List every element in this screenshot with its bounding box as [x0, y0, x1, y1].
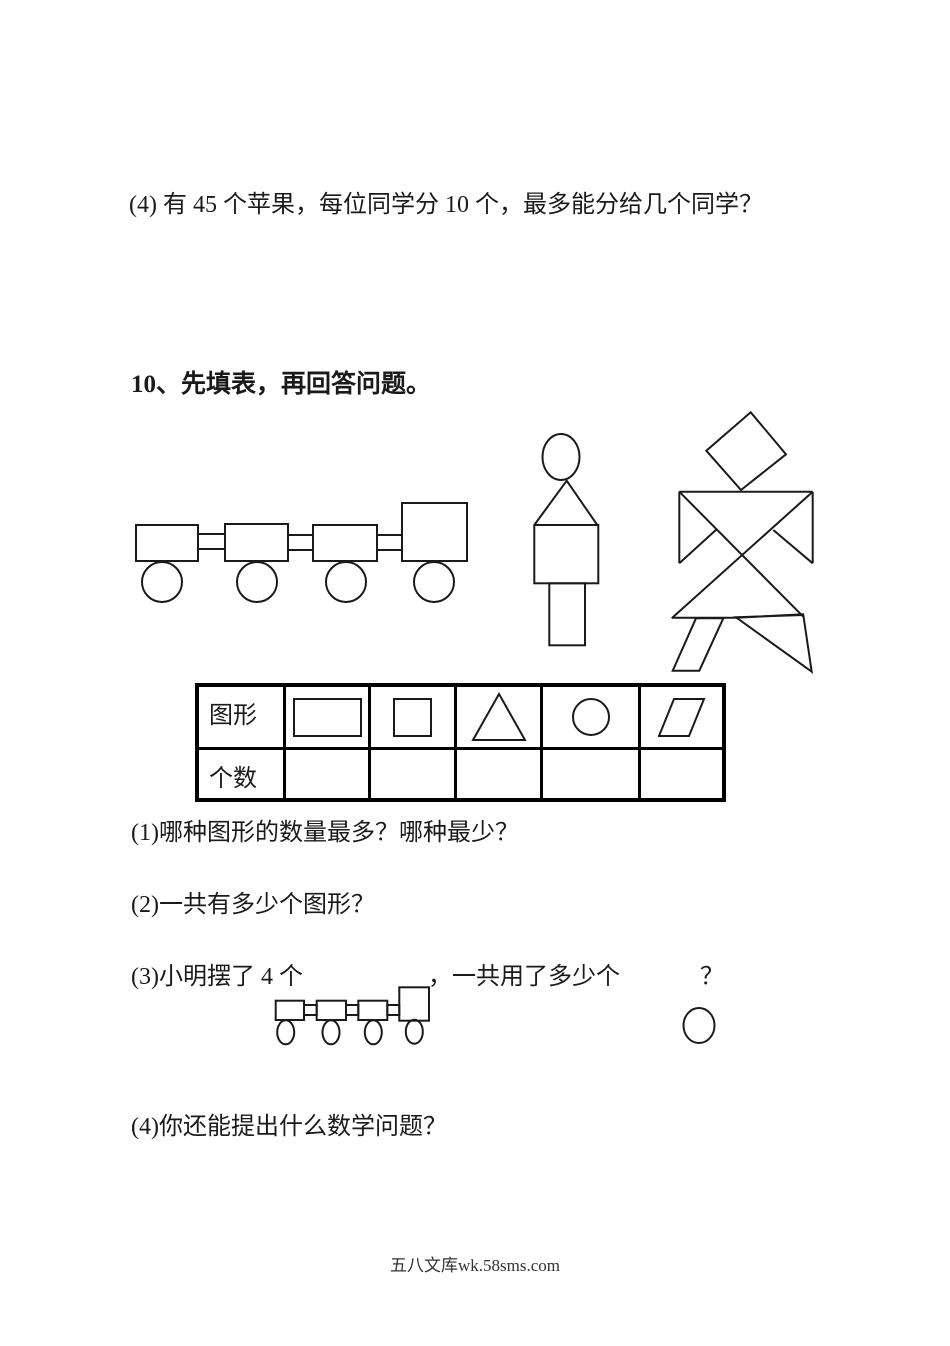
- circle-icon: [571, 697, 611, 737]
- question-1: (1)哪种图形的数量最多？哪种最少？: [131, 820, 519, 846]
- question-3-after: ，一共用了多少个: [428, 964, 620, 990]
- tangram-left-inner-line: [679, 529, 716, 563]
- person-figure: [528, 430, 603, 652]
- small-train-wagon-3: [358, 1001, 387, 1020]
- train-coupler-3: [377, 535, 402, 550]
- train-coupler-1: [198, 534, 225, 549]
- train-figure: [130, 498, 475, 608]
- train-engine-square: [402, 503, 467, 561]
- person-shoulders-triangle: [534, 481, 597, 525]
- rectangle-icon: [292, 697, 363, 738]
- person-body-square: [534, 525, 598, 583]
- count-cell-triangle[interactable]: [454, 747, 540, 798]
- train-wheel-2: [237, 562, 277, 602]
- train-wagon-1: [136, 525, 198, 561]
- table-cell-circle: [540, 687, 638, 747]
- shape-count-table: 图形 个数: [195, 683, 726, 802]
- table-header-shape: 图形: [199, 687, 283, 747]
- small-train-coupler-1: [304, 1005, 317, 1015]
- tangram-right-inner-line: [773, 530, 812, 563]
- small-train-wheel-3: [365, 1020, 382, 1044]
- triangle-icon: [471, 692, 527, 743]
- small-train-wheel-1: [277, 1020, 294, 1044]
- tangram-diagonal-b: [672, 492, 813, 619]
- count-cell-parallelogram[interactable]: [638, 747, 722, 798]
- train-wheel-3: [326, 562, 366, 602]
- train-wheel-1: [142, 562, 182, 602]
- count-cell-square[interactable]: [368, 747, 454, 798]
- tangram-diagonal-a: [679, 492, 803, 617]
- train-coupler-2: [288, 535, 313, 550]
- table-header-count: 个数: [199, 747, 283, 798]
- question-3-mark: ？: [700, 964, 724, 990]
- parallelogram-icon: [658, 697, 706, 738]
- table-cell-parallelogram: [638, 687, 722, 747]
- tangram-figure: [668, 406, 818, 676]
- person-legs-rect: [549, 583, 585, 645]
- tangram-right-leg: [736, 615, 812, 672]
- small-train-wagon-2: [317, 1001, 346, 1020]
- small-train-coupler-3: [387, 1005, 399, 1015]
- count-cell-circle[interactable]: [540, 747, 638, 798]
- table-cell-triangle: [454, 687, 540, 747]
- table-cell-rectangle: [283, 687, 368, 747]
- square-icon: [392, 697, 433, 738]
- train-wagon-3: [313, 525, 377, 561]
- question-2: (2)一共有多少个图形？: [131, 892, 375, 918]
- count-cell-rectangle[interactable]: [283, 747, 368, 798]
- small-train-engine-square: [399, 987, 429, 1020]
- question-4: (4)你还能提出什么数学问题？: [131, 1114, 447, 1140]
- section-heading: 10、先填表，再回答问题。: [131, 371, 431, 399]
- footer-watermark: 五八文库wk.58sms.com: [0, 1251, 950, 1276]
- question-3-circle-icon: [681, 1006, 719, 1046]
- tangram-head-diamond: [706, 412, 786, 490]
- train-wheel-4: [414, 562, 454, 602]
- tangram-left-leg: [673, 618, 724, 670]
- small-train-wheel-2: [323, 1020, 340, 1044]
- small-train-wheel-4: [406, 1020, 423, 1044]
- person-head-circle: [543, 434, 580, 480]
- question-apples: (4) 有 45 个苹果，每位同学分 10 个，最多能分给几个同学？: [129, 192, 763, 218]
- small-train-figure: [272, 985, 434, 1047]
- table-cell-square: [368, 687, 454, 747]
- small-train-wagon-1: [276, 1001, 304, 1020]
- train-wagon-2: [225, 524, 288, 561]
- small-train-coupler-2: [346, 1005, 358, 1015]
